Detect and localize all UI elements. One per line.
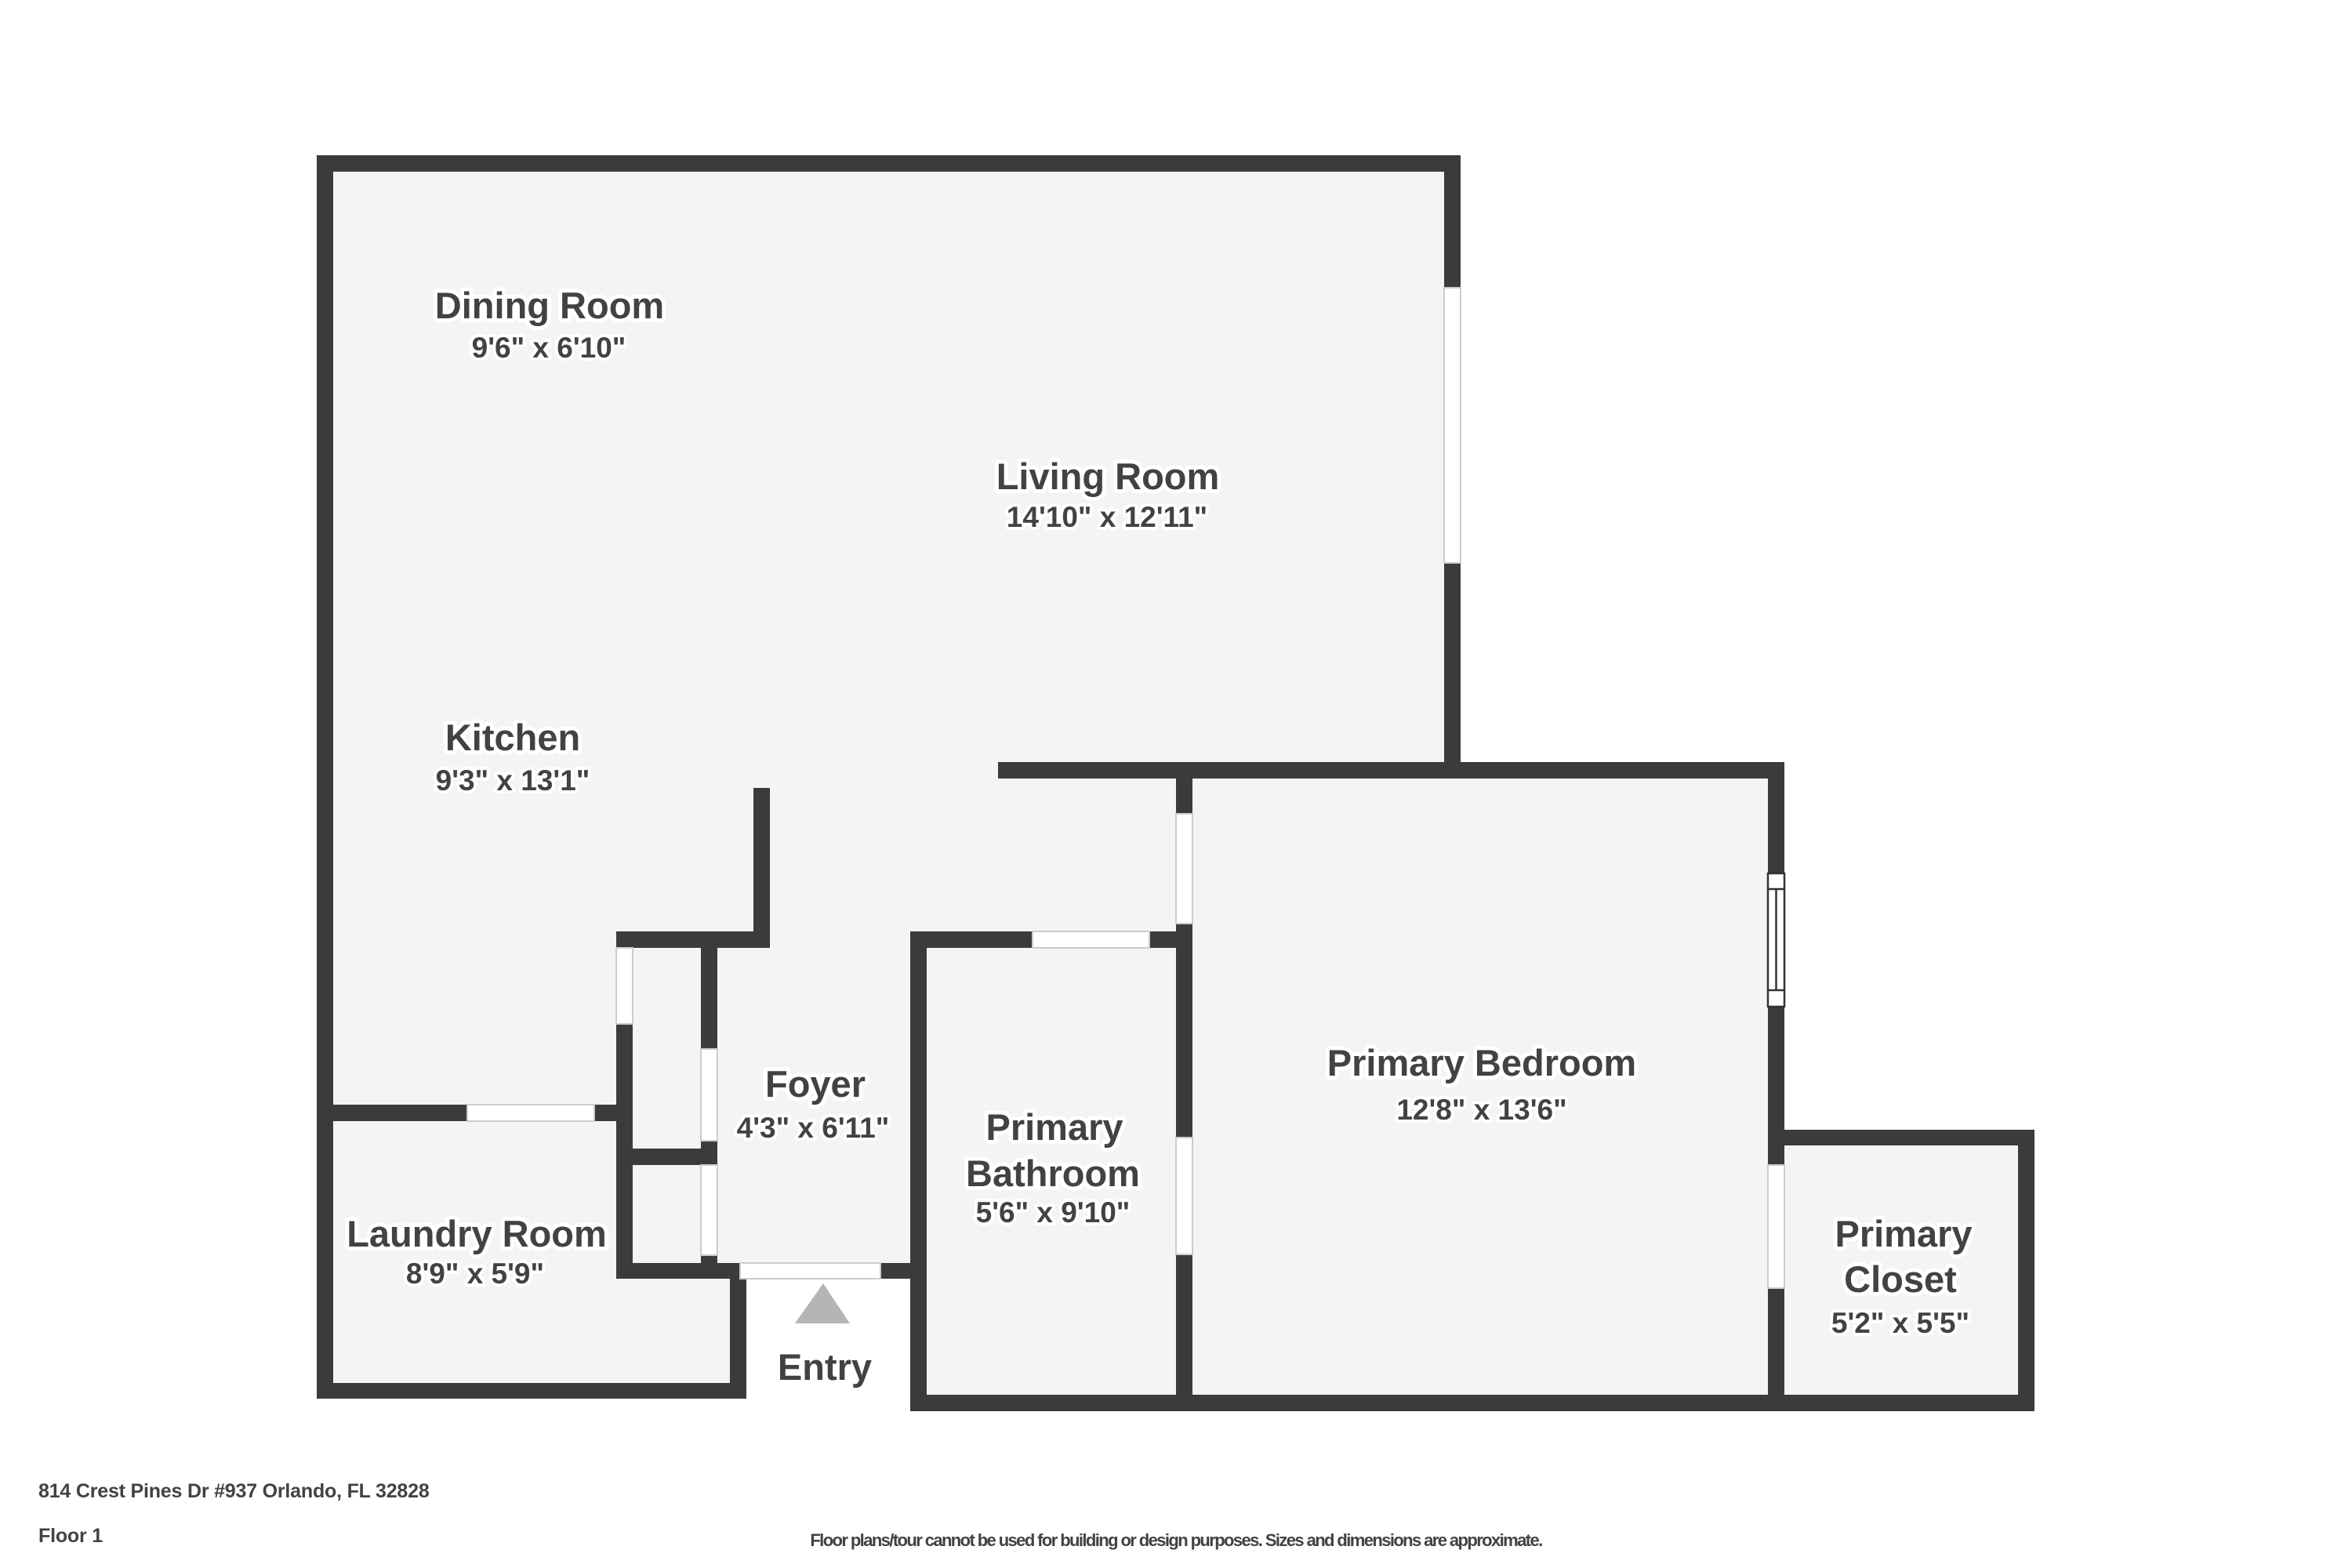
svg-text:5'2" x 5'5": 5'2" x 5'5" (1831, 1307, 1969, 1339)
svg-text:4'3" x 6'11": 4'3" x 6'11" (737, 1112, 890, 1144)
svg-text:5'6" x 9'10": 5'6" x 9'10" (976, 1196, 1131, 1229)
svg-text:Floor plans/tour cannot be use: Floor plans/tour cannot be used for buil… (810, 1530, 1542, 1550)
svg-text:Entry: Entry (778, 1346, 872, 1388)
svg-text:14'10" x 12'11": 14'10" x 12'11" (1007, 501, 1207, 533)
svg-text:Foyer: Foyer (765, 1063, 866, 1105)
svg-text:Dining Room: Dining Room (435, 285, 664, 326)
svg-text:Bathroom: Bathroom (966, 1152, 1140, 1194)
svg-text:9'3" x 13'1": 9'3" x 13'1" (436, 764, 590, 797)
svg-text:Primary: Primary (1835, 1213, 1972, 1254)
svg-text:Primary: Primary (985, 1106, 1123, 1148)
svg-text:Floor 1: Floor 1 (38, 1525, 103, 1547)
svg-text:814 Crest Pines Dr #937 Orland: 814 Crest Pines Dr #937 Orlando, FL 3282… (38, 1480, 430, 1502)
svg-text:Primary Bedroom: Primary Bedroom (1327, 1042, 1636, 1083)
svg-text:Closet: Closet (1844, 1258, 1957, 1300)
svg-text:Laundry Room: Laundry Room (347, 1213, 607, 1254)
svg-text:Kitchen: Kitchen (445, 717, 580, 758)
svg-text:9'6" x 6'10": 9'6" x 6'10" (472, 332, 626, 364)
svg-text:12'8" x 13'6": 12'8" x 13'6" (1396, 1094, 1566, 1126)
svg-text:8'9" x 5'9": 8'9" x 5'9" (406, 1258, 544, 1290)
svg-text:Living Room: Living Room (996, 456, 1220, 497)
